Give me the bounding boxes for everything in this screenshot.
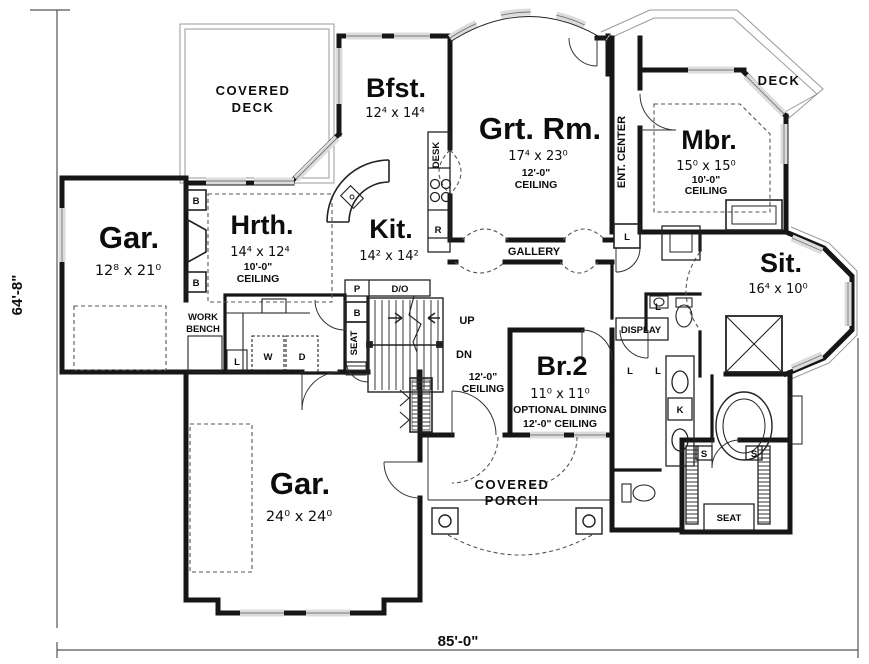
tag-r: R — [435, 225, 442, 236]
toilet-tank — [622, 484, 631, 502]
floor-plan-page: COVERED DECK Bfst. 12⁴ x 14⁴ Grt. Rm. 17… — [0, 0, 869, 664]
dimension-lines — [30, 10, 858, 658]
fireplace — [188, 220, 206, 262]
entry-built-in-inner — [670, 234, 692, 252]
closet-door — [712, 440, 740, 468]
cooktop-burner — [431, 180, 440, 189]
room-label-mbr: Mbr. — [681, 125, 737, 155]
gallery-closet-door — [616, 248, 640, 272]
tag-l-gallery: L — [624, 232, 630, 243]
room-label-grt-rm: Grt. Rm. — [479, 111, 601, 146]
mbr-door — [640, 94, 676, 130]
toilet-bowl — [633, 485, 655, 501]
closet-rod-right — [758, 446, 770, 524]
tag-b-1: B — [193, 196, 200, 207]
room-label-kit: Kit. — [369, 214, 413, 244]
tag-p: P — [354, 284, 361, 295]
garage-slab-break-2 — [74, 306, 166, 370]
room-size-hrth: 14⁴ x 12⁴ — [230, 245, 289, 260]
label-desk: DESK — [431, 142, 442, 169]
room-ceiling-mbr-2: CEILING — [685, 185, 728, 197]
overall-width-dimension: 85'-0" — [438, 633, 479, 650]
bifold-door-marks — [400, 390, 409, 428]
toilet-bowl — [676, 305, 692, 327]
coat-closet — [400, 378, 432, 432]
hall-ceiling-1: 12'-0" — [469, 371, 498, 383]
tag-l-hall-2: L — [655, 366, 661, 377]
room-size-mbr: 15⁰ x 15⁰ — [676, 159, 735, 174]
mudroom-closet-rod — [346, 362, 366, 375]
room-label-porch-1: COVERED — [475, 477, 550, 492]
label-up: UP — [459, 315, 474, 327]
room-ceiling-grt-rm-2: CEILING — [515, 179, 558, 191]
room-label-porch-2: PORCH — [485, 493, 539, 508]
tag-l-hall-1: L — [627, 366, 633, 377]
room-ceiling-grt-rm-1: 12'-0" — [522, 167, 551, 179]
room-note-br2-2: 12'-0" CEILING — [523, 418, 597, 430]
kitchen-island — [327, 160, 389, 222]
label-work-bench-2: BENCH — [186, 324, 220, 335]
toilet-tank — [676, 298, 692, 307]
laundry-sink — [262, 299, 286, 313]
porch-column — [432, 508, 458, 534]
room-label-gar-upper: Gar. — [99, 220, 159, 255]
sit-opening — [686, 252, 700, 330]
room-size-grt-rm: 17⁴ x 23⁰ — [508, 149, 567, 164]
room-ceiling-hrth-2: CEILING — [237, 273, 280, 285]
label-work-bench-1: WORK — [188, 312, 218, 323]
label-display: DISPLAY — [621, 325, 662, 336]
room-ceiling-hrth-1: 10'-0" — [244, 261, 273, 273]
mbr-window-seat-inner — [732, 206, 776, 224]
garage-service-door — [384, 462, 420, 498]
room-label-hrth: Hrth. — [231, 210, 294, 240]
room-size-kit: 14² x 14² — [359, 249, 418, 264]
room-size-sit: 16⁴ x 10⁰ — [748, 282, 807, 297]
tag-do: D/O — [392, 284, 409, 295]
tag-d: D — [299, 352, 306, 363]
vanity-sink — [672, 371, 688, 393]
label-dn: DN — [456, 349, 472, 361]
water-closet — [622, 484, 655, 502]
room-label-sit: Sit. — [760, 248, 802, 278]
porch-column — [576, 508, 602, 534]
room-size-br2: 11⁰ x 11⁰ — [530, 387, 589, 402]
tag-w: W — [264, 352, 273, 363]
deck-door — [569, 38, 597, 66]
tag-l-laundry: L — [234, 357, 240, 368]
tag-l-powder: L — [655, 302, 661, 313]
garage-slab-break — [190, 424, 252, 572]
tag-k: K — [677, 405, 684, 416]
tag-s-left: S — [701, 449, 707, 460]
tag-b-3: B — [354, 308, 361, 319]
tag-b-2: B — [193, 278, 200, 289]
stair-break-line — [409, 296, 421, 352]
label-gallery: GALLERY — [508, 246, 561, 258]
room-label-gar-lower: Gar. — [270, 466, 330, 501]
room-size-gar-lower: 24⁰ x 24⁰ — [266, 509, 333, 525]
overall-height-dimension: 64'-8" — [9, 275, 26, 316]
garage-entry-door — [302, 372, 340, 410]
bay-window-inner-arc — [450, 17, 608, 43]
rear-deck-outline — [601, 10, 823, 119]
hall-ceiling-2: CEILING — [462, 383, 505, 395]
shower — [726, 316, 782, 372]
room-label-bfst: Bfst. — [366, 73, 426, 103]
label-ent-center: ENT. CENTER — [616, 116, 628, 188]
room-note-br2-1: OPTIONAL DINING — [513, 404, 607, 416]
room-label-deck: DECK — [758, 73, 801, 88]
workbench — [188, 336, 222, 372]
front-door — [452, 391, 496, 435]
room-size-bfst: 12⁴ x 14⁴ — [365, 106, 424, 121]
laundry-door — [315, 300, 345, 330]
room-label-covered-deck-1: COVERED — [216, 83, 291, 98]
room-size-gar-upper: 12⁸ x 21⁰ — [95, 263, 162, 279]
porch-edge-curve — [448, 535, 592, 555]
labels: COVERED DECK Bfst. 12⁴ x 14⁴ Grt. Rm. 17… — [9, 73, 808, 650]
tag-s-right: S — [751, 449, 757, 460]
room-label-covered-deck-2: DECK — [232, 100, 275, 115]
room-label-br2: Br.2 — [536, 351, 587, 381]
cooktop-burner — [431, 193, 440, 202]
label-seat-closet: SEAT — [717, 513, 742, 524]
label-seat-mudroom: SEAT — [349, 330, 360, 355]
floor-plan-drawing: COVERED DECK Bfst. 12⁴ x 14⁴ Grt. Rm. 17… — [0, 0, 869, 664]
mbr-window-seat — [726, 200, 782, 230]
